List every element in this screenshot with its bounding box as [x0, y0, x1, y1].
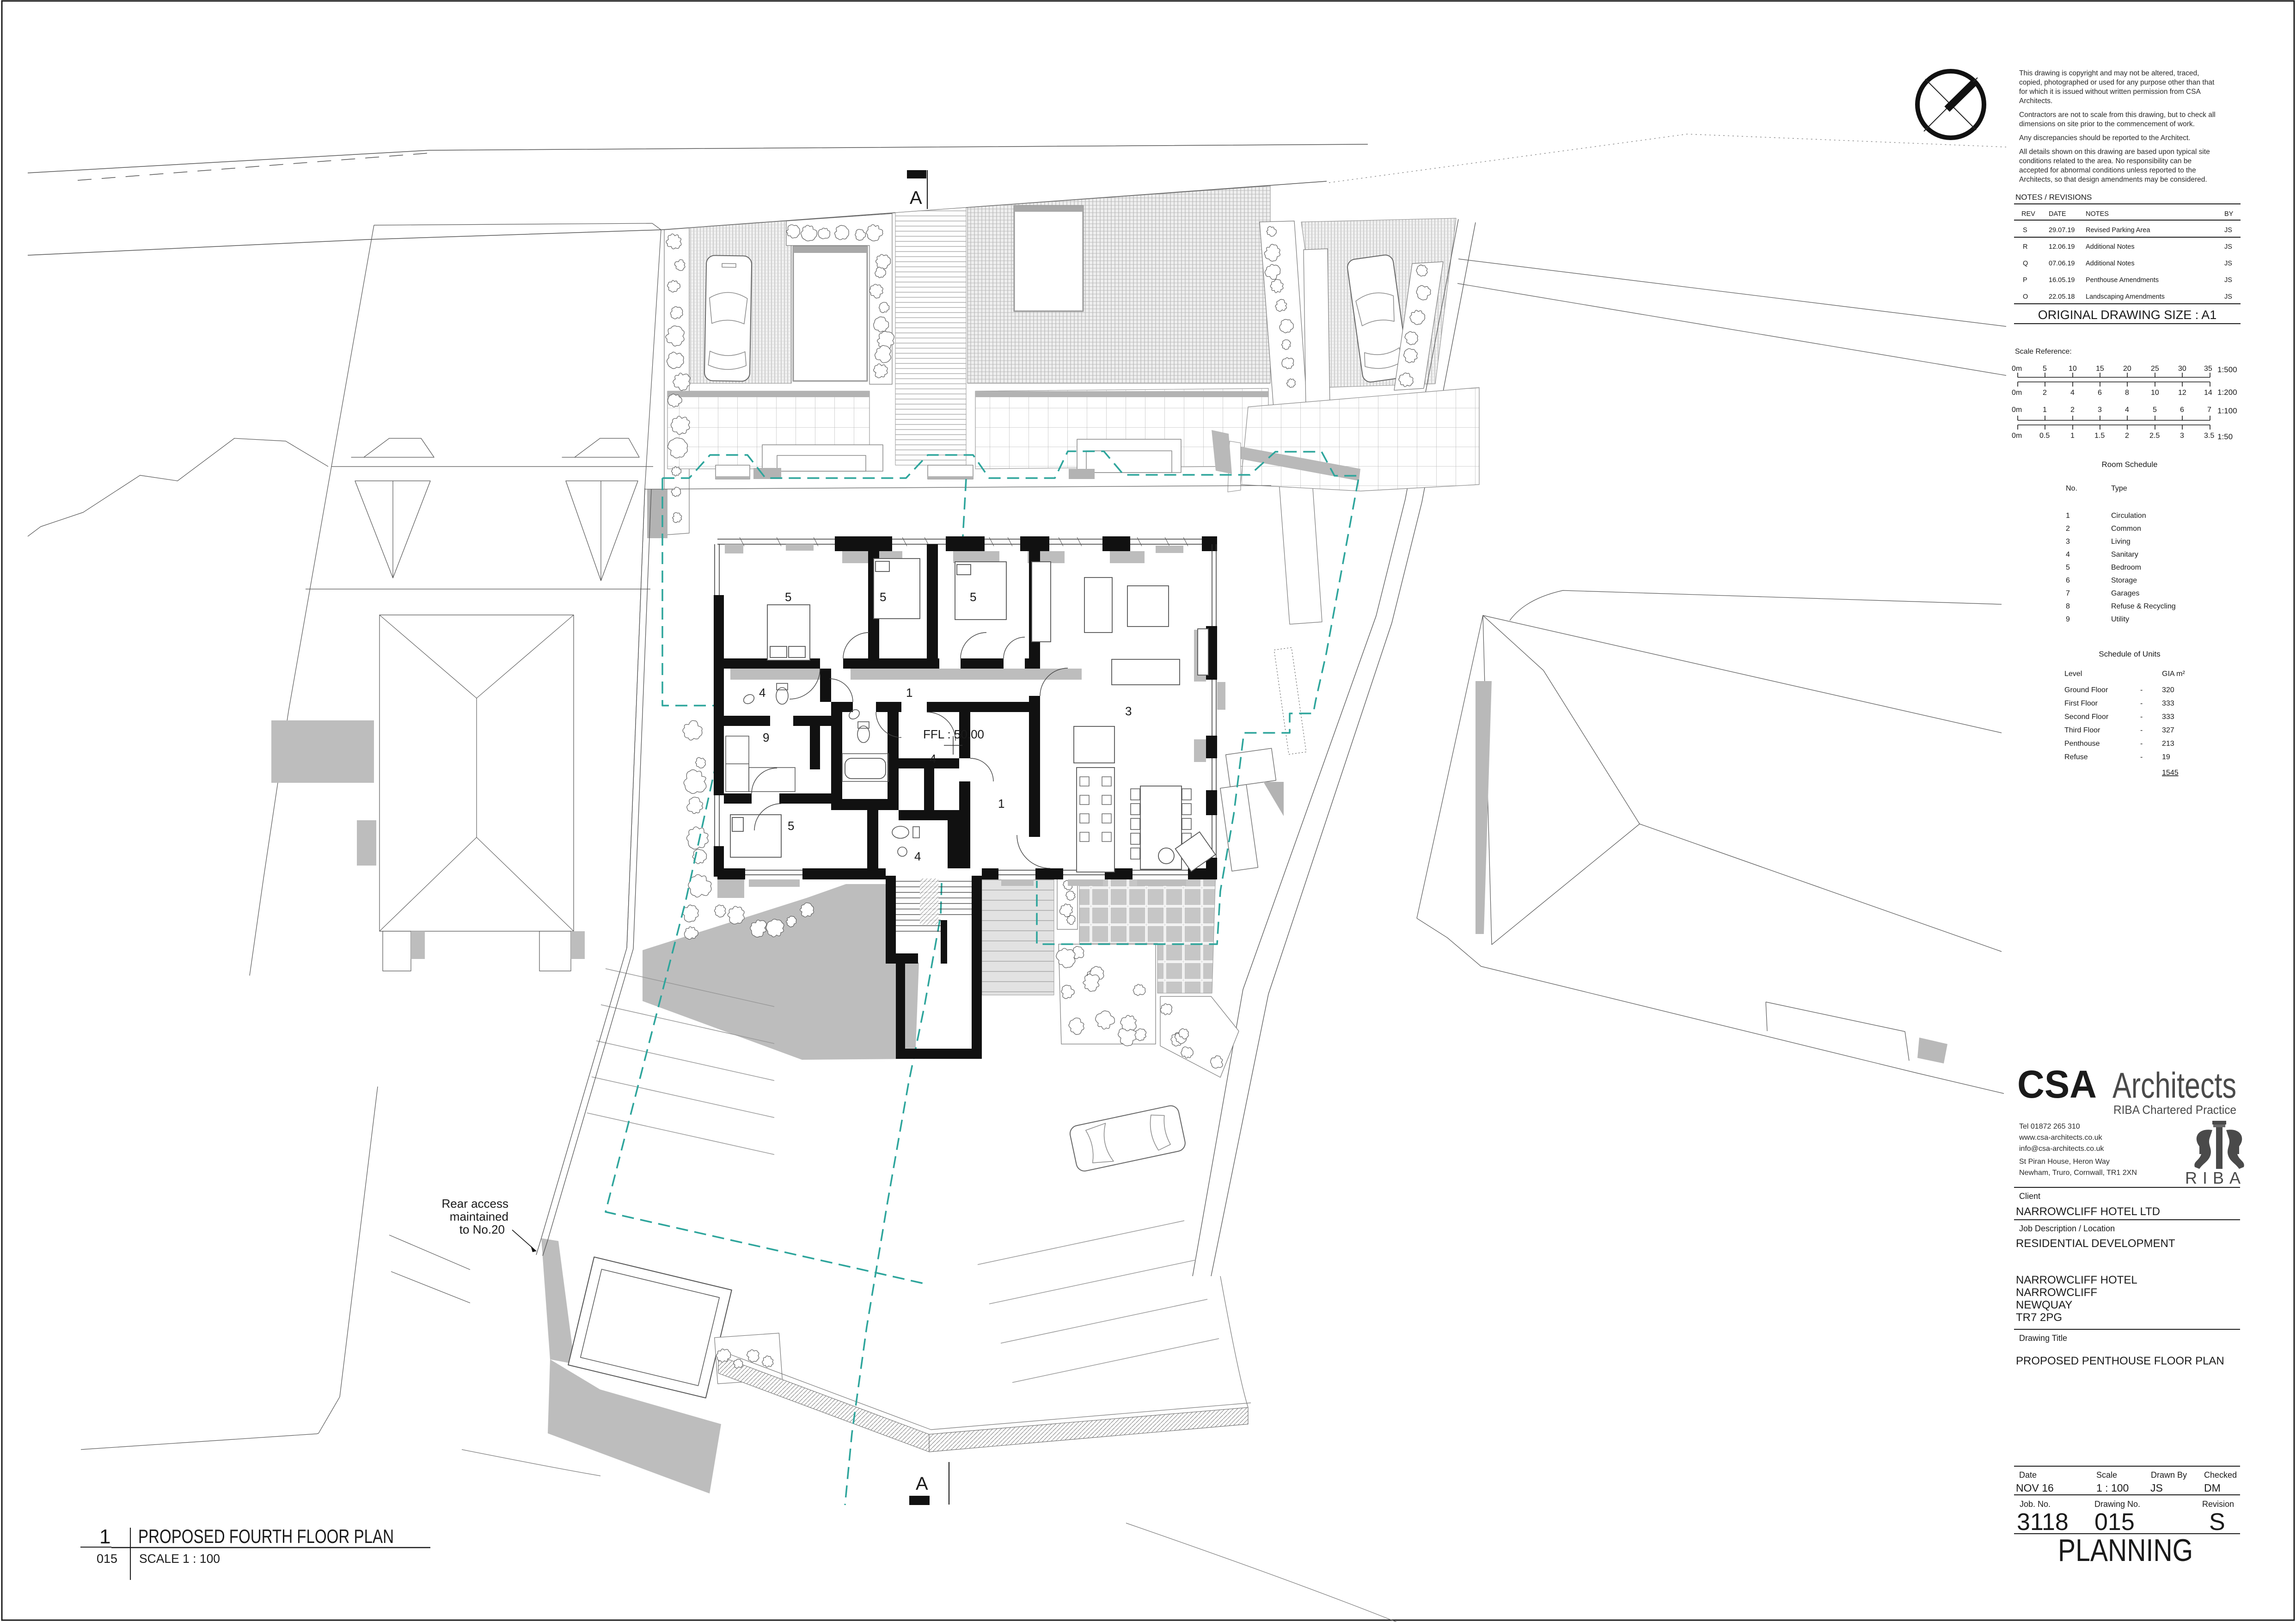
svg-text:10: 10: [2069, 365, 2077, 373]
svg-text:info@csa-architects.co.uk: info@csa-architects.co.uk: [2019, 1145, 2104, 1153]
svg-text:dimensions on site prior to th: dimensions on site prior to the commence…: [2019, 120, 2195, 128]
svg-text:FFL : 50.00: FFL : 50.00: [923, 727, 984, 741]
svg-text:JS: JS: [2150, 1482, 2163, 1494]
svg-text:Third Floor: Third Floor: [2064, 726, 2100, 734]
svg-text:JS: JS: [2224, 293, 2232, 301]
svg-text:1:50: 1:50: [2217, 432, 2233, 441]
svg-text:No.: No.: [2066, 485, 2077, 492]
svg-text:A: A: [916, 1474, 928, 1494]
svg-text:maintained: maintained: [450, 1210, 508, 1223]
svg-text:Drawn By: Drawn By: [2151, 1470, 2187, 1480]
svg-text:copied, photographed or used f: copied, photographed or used for any pur…: [2019, 79, 2215, 86]
svg-text:GIA m²: GIA m²: [2162, 670, 2185, 678]
svg-text:JS: JS: [2224, 243, 2232, 251]
svg-text:5: 5: [2043, 365, 2047, 373]
svg-text:RESIDENTIAL DEVELOPMENT: RESIDENTIAL DEVELOPMENT: [2016, 1237, 2175, 1250]
svg-text:4: 4: [759, 686, 765, 700]
svg-text:22.05.18: 22.05.18: [2049, 293, 2075, 301]
svg-text:4: 4: [930, 752, 936, 766]
svg-text:Scale: Scale: [2096, 1470, 2117, 1480]
svg-text:This drawing is copyright and: This drawing is copyright and may not be…: [2019, 69, 2199, 77]
svg-text:Architects, so that design ame: Architects, so that design amendments ma…: [2019, 176, 2207, 184]
svg-text:3: 3: [1125, 704, 1132, 718]
svg-text:Sanitary: Sanitary: [2111, 551, 2138, 559]
svg-text:Scale Reference:: Scale Reference:: [2015, 348, 2072, 356]
svg-text:-: -: [2140, 740, 2143, 748]
svg-text:PROPOSED PENTHOUSE FLOOR PLAN: PROPOSED PENTHOUSE FLOOR PLAN: [2016, 1355, 2224, 1367]
svg-text:4: 4: [2070, 389, 2075, 397]
svg-text:S: S: [2209, 1509, 2225, 1536]
svg-text:10: 10: [2151, 389, 2159, 397]
svg-text:-: -: [2140, 753, 2143, 761]
svg-text:12: 12: [2178, 389, 2186, 397]
svg-text:0.5: 0.5: [2039, 432, 2050, 440]
svg-text:Schedule of Units: Schedule of Units: [2099, 650, 2160, 658]
svg-text:333: 333: [2162, 700, 2174, 707]
svg-text:Any discrepancies should be re: Any discrepancies should be reported to …: [2019, 134, 2191, 142]
svg-text:NARROWCLIFF: NARROWCLIFF: [2016, 1286, 2097, 1299]
svg-text:Contractors are not to scale f: Contractors are not to scale from this d…: [2019, 111, 2216, 119]
svg-text:S: S: [2023, 227, 2027, 234]
svg-text:JS: JS: [2224, 260, 2232, 267]
svg-text:Revised Parking Area: Revised Parking Area: [2086, 227, 2150, 234]
svg-text:R: R: [2023, 243, 2027, 251]
svg-text:RIBA: RIBA: [2185, 1168, 2246, 1187]
svg-text:Job Description / Location: Job Description / Location: [2019, 1224, 2115, 1233]
svg-text:5: 5: [785, 590, 791, 604]
svg-text:327: 327: [2162, 726, 2174, 734]
svg-text:to No.20: to No.20: [459, 1223, 505, 1236]
svg-text:JS: JS: [2224, 227, 2232, 234]
svg-text:conditions related to the area: conditions related to the area. No respo…: [2019, 157, 2192, 165]
svg-text:2: 2: [2125, 432, 2129, 440]
svg-text:Landscaping Amendments: Landscaping Amendments: [2086, 293, 2165, 301]
svg-text:213: 213: [2162, 740, 2174, 748]
svg-text:Refuse: Refuse: [2064, 753, 2088, 761]
svg-text:ORIGINAL DRAWING SIZE : A1: ORIGINAL DRAWING SIZE : A1: [2038, 308, 2217, 322]
svg-text:Ground Floor: Ground Floor: [2064, 686, 2108, 694]
svg-text:Type: Type: [2111, 485, 2127, 492]
svg-text:SCALE 1 : 100: SCALE 1 : 100: [139, 1552, 220, 1566]
svg-text:-: -: [2140, 700, 2143, 707]
svg-text:Level: Level: [2064, 670, 2082, 678]
svg-text:4: 4: [914, 849, 921, 863]
svg-text:for which it is issued without: for which it is issued without written p…: [2019, 88, 2201, 96]
svg-text:015: 015: [97, 1552, 117, 1566]
svg-text:Date: Date: [2019, 1470, 2037, 1480]
svg-text:Living: Living: [2111, 538, 2131, 546]
svg-text:4: 4: [2066, 551, 2070, 559]
svg-text:-: -: [2140, 686, 2143, 694]
svg-text:3.5: 3.5: [2204, 432, 2214, 440]
svg-text:First Floor: First Floor: [2064, 700, 2098, 707]
svg-text:PLANNING: PLANNING: [2058, 1533, 2193, 1568]
svg-text:NOTES: NOTES: [2086, 210, 2109, 218]
svg-text:20: 20: [2123, 365, 2131, 373]
svg-text:8: 8: [2066, 602, 2070, 610]
svg-text:NOTES / REVISIONS: NOTES / REVISIONS: [2015, 193, 2092, 202]
svg-text:NOV 16: NOV 16: [2016, 1482, 2054, 1494]
svg-text:Storage: Storage: [2111, 577, 2137, 584]
svg-text:Architects.: Architects.: [2019, 97, 2052, 105]
svg-text:07.06.19: 07.06.19: [2049, 260, 2075, 267]
svg-text:RIBA Chartered Practice: RIBA Chartered Practice: [2113, 1103, 2236, 1117]
svg-text:2: 2: [2066, 525, 2070, 533]
svg-text:BY: BY: [2224, 210, 2234, 218]
svg-text:St Piran House, Heron Way: St Piran House, Heron Way: [2019, 1158, 2110, 1166]
svg-text:O: O: [2023, 293, 2028, 301]
svg-text:320: 320: [2162, 686, 2174, 694]
svg-text:Circulation: Circulation: [2111, 512, 2146, 520]
svg-text:5: 5: [788, 819, 794, 833]
svg-text:NEWQUAY: NEWQUAY: [2016, 1299, 2072, 1311]
svg-text:9: 9: [2066, 615, 2070, 623]
svg-text:0m: 0m: [2012, 432, 2022, 440]
svg-text:3: 3: [2180, 432, 2184, 440]
svg-text:5: 5: [2066, 564, 2070, 571]
svg-text:5: 5: [970, 590, 976, 604]
svg-text:1.5: 1.5: [2094, 432, 2105, 440]
svg-text:35: 35: [2204, 365, 2212, 373]
svg-text:16.05.19: 16.05.19: [2049, 276, 2075, 284]
svg-text:1:100: 1:100: [2217, 406, 2237, 415]
svg-text:Utility: Utility: [2111, 615, 2129, 623]
svg-text:Additional Notes: Additional Notes: [2086, 260, 2135, 267]
svg-text:Bedroom: Bedroom: [2111, 564, 2141, 571]
svg-text:1: 1: [998, 797, 1004, 811]
svg-text:A: A: [910, 188, 922, 208]
svg-text:6: 6: [2066, 577, 2070, 584]
svg-text:9: 9: [763, 731, 769, 744]
svg-text:1: 1: [99, 1525, 110, 1548]
svg-text:Client: Client: [2019, 1192, 2040, 1201]
svg-text:Penthouse: Penthouse: [2064, 740, 2100, 748]
svg-text:3: 3: [2066, 538, 2070, 546]
svg-text:2.5: 2.5: [2149, 432, 2160, 440]
svg-text:Room Schedule: Room Schedule: [2102, 460, 2158, 469]
svg-text:6: 6: [2180, 406, 2184, 414]
svg-text:3: 3: [2098, 406, 2102, 414]
svg-text:1: 1: [2043, 406, 2047, 414]
svg-text:8: 8: [2125, 389, 2129, 397]
svg-text:www.csa-architects.co.uk: www.csa-architects.co.uk: [2019, 1134, 2103, 1142]
svg-text:Drawing No.: Drawing No.: [2094, 1499, 2140, 1509]
svg-text:333: 333: [2162, 713, 2174, 721]
svg-text:4: 4: [2125, 406, 2129, 414]
svg-text:0m: 0m: [2012, 406, 2022, 414]
svg-text:Penthouse Amendments: Penthouse Amendments: [2086, 276, 2159, 284]
svg-text:7: 7: [2207, 406, 2211, 414]
svg-text:TR7 2PG: TR7 2PG: [2016, 1311, 2062, 1324]
svg-text:Checked: Checked: [2204, 1470, 2237, 1480]
svg-text:5: 5: [2153, 406, 2157, 414]
svg-text:7: 7: [2066, 590, 2070, 597]
svg-text:1 : 100: 1 : 100: [2096, 1482, 2129, 1494]
svg-text:6: 6: [2098, 389, 2102, 397]
svg-text:DM: DM: [2204, 1482, 2221, 1494]
svg-text:DATE: DATE: [2049, 210, 2066, 218]
svg-text:30: 30: [2178, 365, 2186, 373]
svg-text:5: 5: [880, 590, 886, 604]
svg-text:Q: Q: [2023, 260, 2028, 267]
svg-text:1: 1: [2070, 432, 2075, 440]
svg-text:015: 015: [2094, 1509, 2135, 1536]
svg-text:-: -: [2140, 726, 2143, 734]
svg-text:PROPOSED FOURTH FLOOR PLAN: PROPOSED FOURTH FLOOR PLAN: [138, 1525, 394, 1547]
svg-text:Garages: Garages: [2111, 590, 2139, 597]
svg-text:1:500: 1:500: [2217, 365, 2237, 374]
svg-text:All details shown on this draw: All details shown on this drawing are ba…: [2019, 148, 2210, 156]
svg-text:14: 14: [2204, 389, 2212, 397]
svg-text:0m: 0m: [2012, 389, 2022, 397]
svg-text:1545: 1545: [2162, 769, 2179, 777]
svg-text:P: P: [2023, 276, 2027, 284]
svg-text:Second Floor: Second Floor: [2064, 713, 2109, 721]
svg-text:2: 2: [2070, 406, 2075, 414]
svg-text:25: 25: [2151, 365, 2159, 373]
svg-text:Rear access: Rear access: [442, 1197, 509, 1210]
svg-text:Revision: Revision: [2202, 1499, 2234, 1509]
svg-text:JS: JS: [2224, 276, 2232, 284]
svg-text:accepted for abnormal conditio: accepted for abnormal conditions unless …: [2019, 166, 2196, 174]
svg-text:Tel 01872 265 310: Tel 01872 265 310: [2019, 1123, 2080, 1130]
svg-text:Refuse & Recycling: Refuse & Recycling: [2111, 602, 2176, 610]
svg-text:Common: Common: [2111, 525, 2141, 533]
svg-text:Drawing Title: Drawing Title: [2019, 1333, 2067, 1343]
svg-text:NARROWCLIFF HOTEL LTD: NARROWCLIFF HOTEL LTD: [2016, 1205, 2160, 1218]
svg-text:Newham, Truro, Cornwall, TR1 2: Newham, Truro, Cornwall, TR1 2XN: [2019, 1169, 2137, 1177]
svg-text:CSA: CSA: [2017, 1063, 2097, 1106]
svg-text:15: 15: [2096, 365, 2104, 373]
svg-text:Job. No.: Job. No.: [2020, 1499, 2051, 1509]
svg-text:0m: 0m: [2012, 365, 2022, 373]
svg-text:12.06.19: 12.06.19: [2049, 243, 2075, 251]
svg-text:NARROWCLIFF HOTEL: NARROWCLIFF HOTEL: [2016, 1274, 2137, 1286]
svg-text:-: -: [2140, 713, 2143, 721]
svg-text:1: 1: [906, 686, 912, 700]
svg-text:3118: 3118: [2017, 1509, 2069, 1536]
svg-text:REV: REV: [2021, 210, 2035, 218]
svg-text:1: 1: [2066, 512, 2070, 520]
svg-text:29.07.19: 29.07.19: [2049, 227, 2075, 234]
svg-text:Additional Notes: Additional Notes: [2086, 243, 2135, 251]
svg-text:1:200: 1:200: [2217, 388, 2237, 397]
svg-text:Architects: Architects: [2112, 1065, 2236, 1106]
svg-text:19: 19: [2162, 753, 2170, 761]
svg-text:2: 2: [2043, 389, 2047, 397]
